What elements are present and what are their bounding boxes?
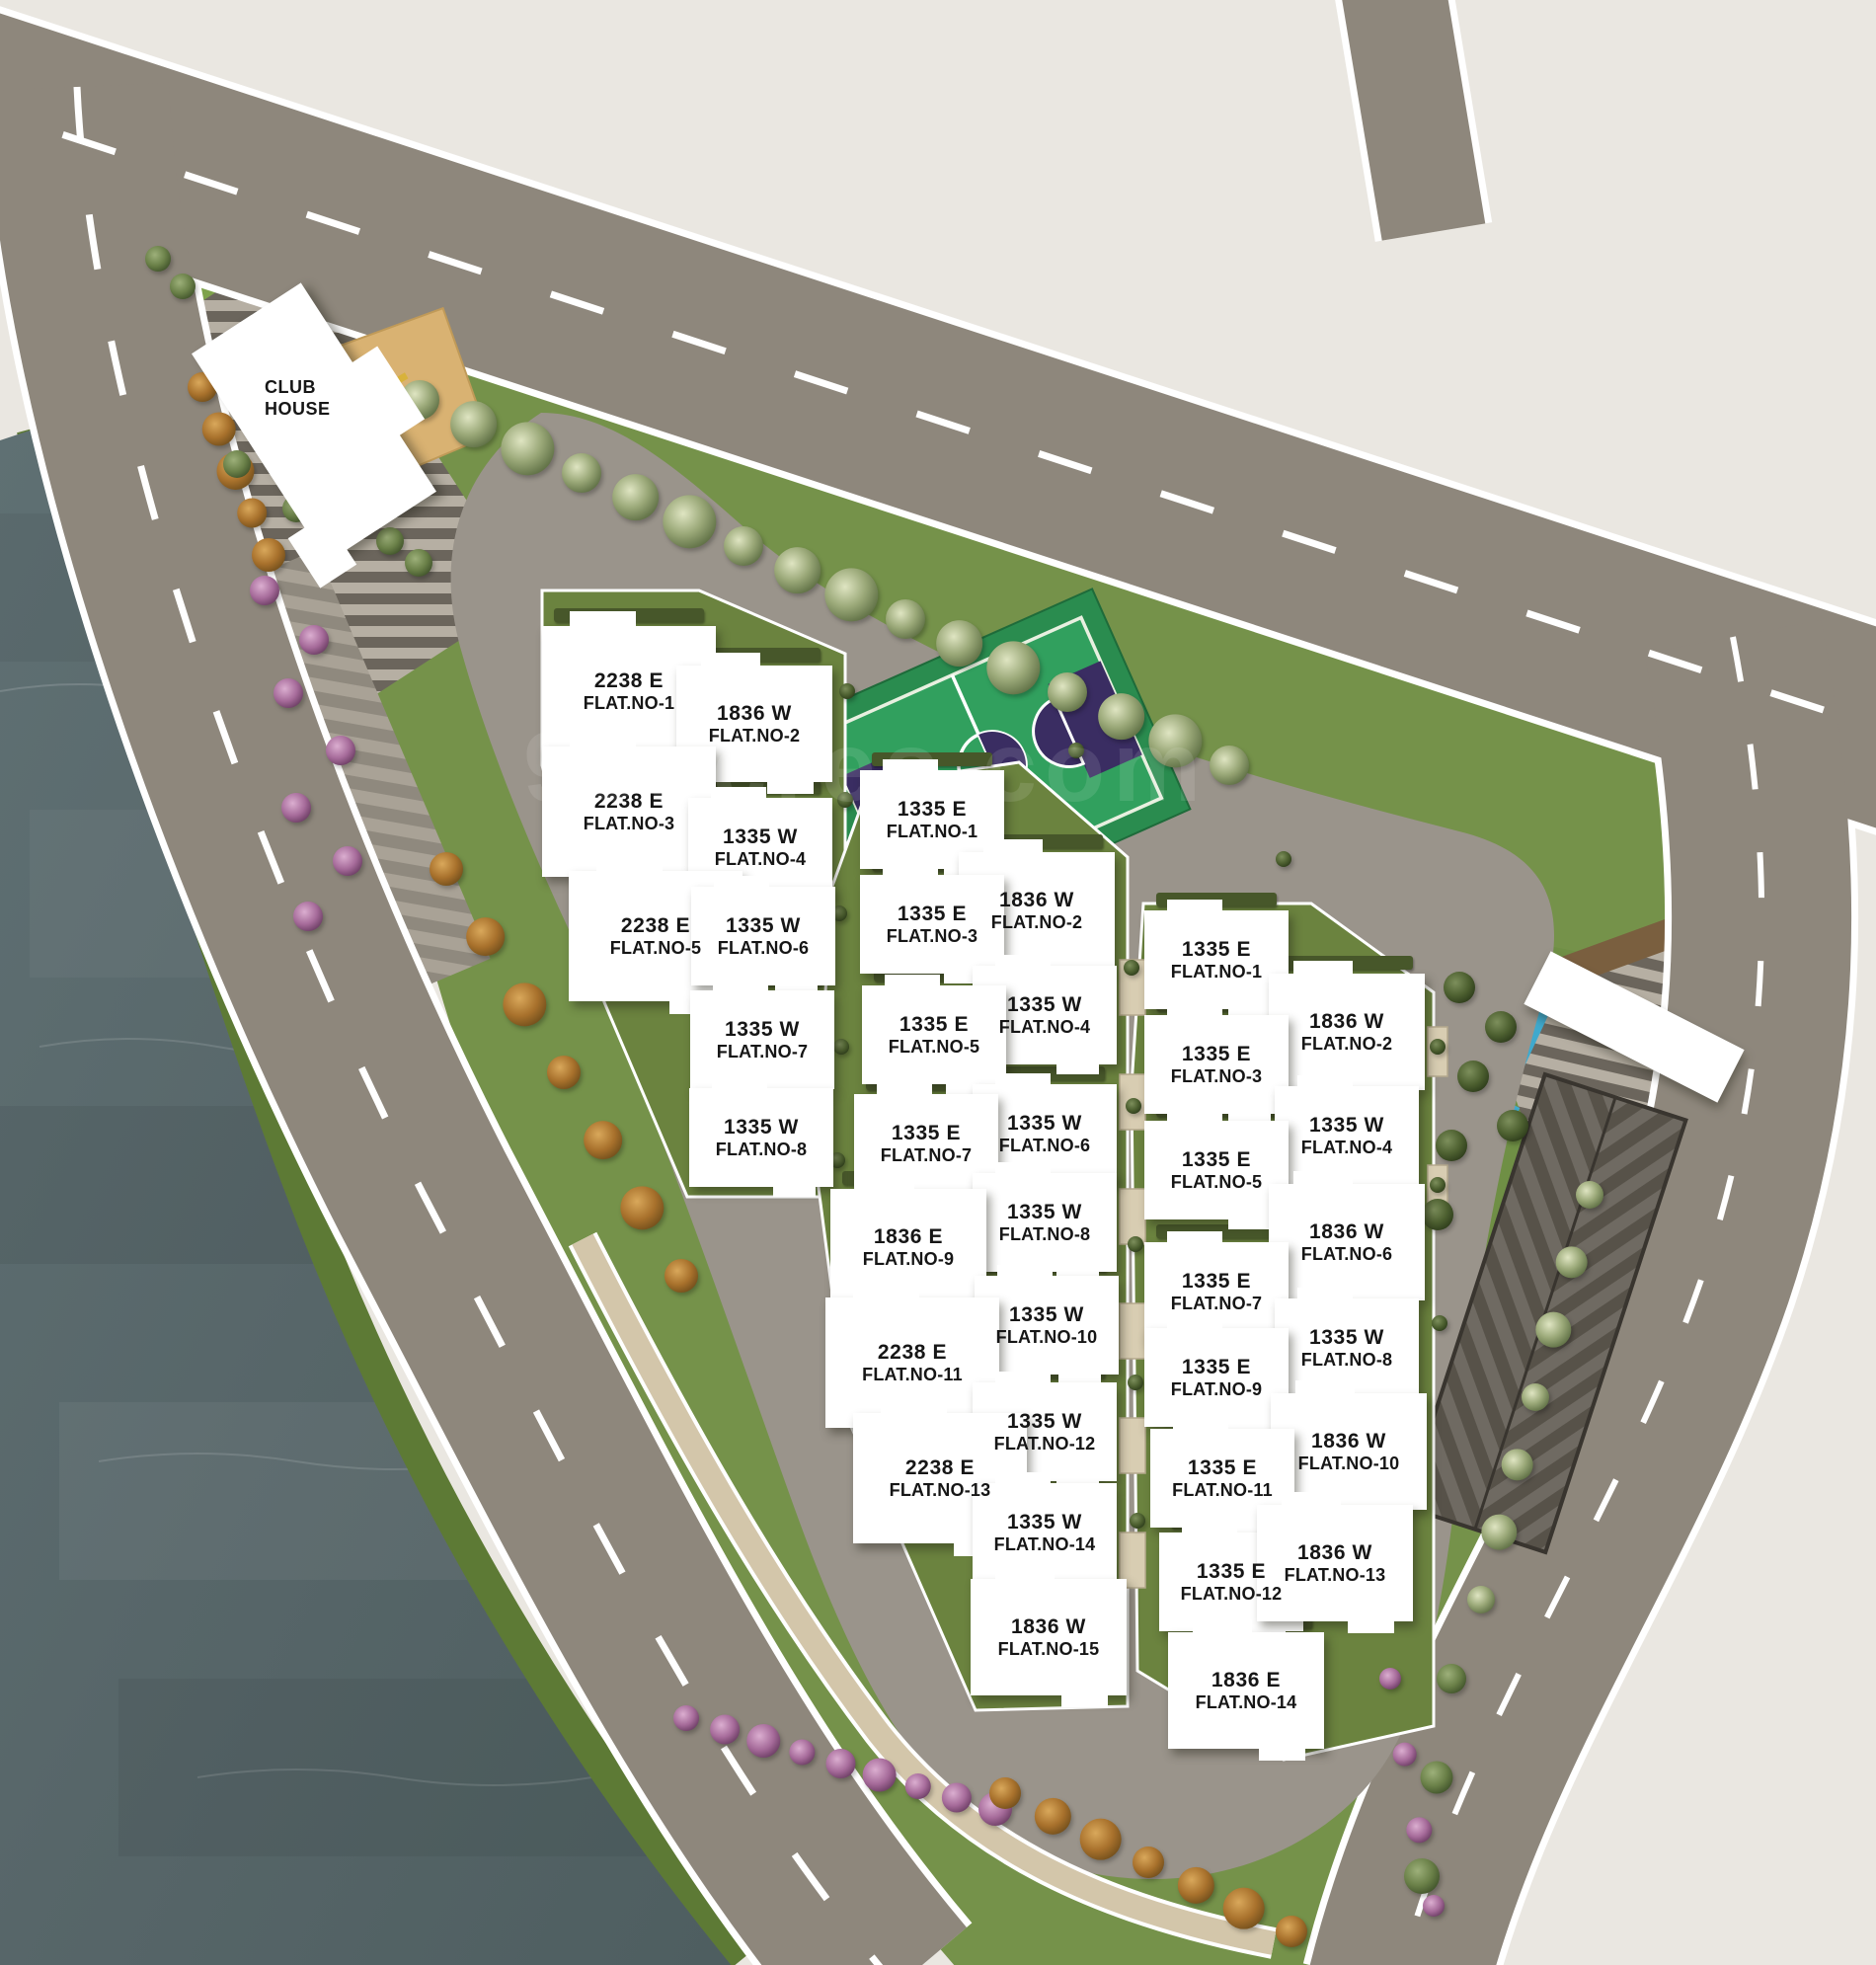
building-type-label: 1335 E xyxy=(1182,1270,1251,1294)
building-central-block-flat-no-3[interactable]: 1335 EFLAT.NO-3 xyxy=(860,875,1004,974)
building-type-label: 1836 E xyxy=(1212,1669,1281,1692)
building-central-block-flat-no-8[interactable]: 1335 WFLAT.NO-8 xyxy=(973,1173,1117,1272)
club-house-building[interactable] xyxy=(192,282,436,562)
site-plan: CLUB HOUSE 2238 EFLAT.NO-11836 WFLAT.NO-… xyxy=(0,0,1876,1965)
club-house-label-line1: CLUB xyxy=(265,377,383,399)
building-east-block-flat-no-5[interactable]: 1335 EFLAT.NO-5 xyxy=(1144,1121,1289,1219)
building-type-label: 1335 E xyxy=(1182,1043,1251,1066)
building-flat-label: FLAT.NO-6 xyxy=(1301,1244,1392,1264)
building-flat-label: FLAT.NO-3 xyxy=(887,926,977,946)
building-type-label: 1335 W xyxy=(723,825,798,849)
building-flat-label: FLAT.NO-2 xyxy=(991,912,1082,932)
building-flat-label: FLAT.NO-15 xyxy=(998,1639,1100,1659)
building-flat-label: FLAT.NO-12 xyxy=(994,1434,1096,1454)
building-type-label: 1836 W xyxy=(999,889,1074,912)
building-flat-label: FLAT.NO-9 xyxy=(863,1249,954,1269)
building-type-label: 2238 E xyxy=(905,1456,975,1480)
building-central-block-flat-no-15[interactable]: 1836 WFLAT.NO-15 xyxy=(971,1579,1127,1695)
building-flat-label: FLAT.NO-3 xyxy=(584,814,674,833)
building-type-label: 1836 W xyxy=(1309,1010,1384,1034)
building-flat-label: FLAT.NO-6 xyxy=(718,938,809,958)
building-flat-label: FLAT.NO-5 xyxy=(1171,1172,1262,1192)
building-east-block-flat-no-13[interactable]: 1836 WFLAT.NO-13 xyxy=(1257,1505,1413,1621)
building-type-label: 1335 W xyxy=(1007,1410,1082,1434)
building-type-label: 1335 W xyxy=(1007,993,1082,1017)
building-central-block-flat-no-5[interactable]: 1335 EFLAT.NO-5 xyxy=(862,985,1006,1084)
building-flat-label: FLAT.NO-13 xyxy=(890,1480,991,1500)
club-house-label-line2: HOUSE xyxy=(265,399,383,421)
building-flat-label: FLAT.NO-14 xyxy=(994,1534,1096,1554)
building-type-label: 1335 E xyxy=(1182,1356,1251,1379)
building-flat-label: FLAT.NO-2 xyxy=(709,726,800,746)
building-east-block-flat-no-6[interactable]: 1836 WFLAT.NO-6 xyxy=(1269,1184,1425,1300)
building-flat-label: FLAT.NO-11 xyxy=(1172,1480,1273,1500)
building-east-block-flat-no-3[interactable]: 1335 EFLAT.NO-3 xyxy=(1144,1015,1289,1114)
building-type-label: 1335 E xyxy=(898,798,967,822)
building-flat-label: FLAT.NO-8 xyxy=(716,1140,807,1159)
building-type-label: 1335 E xyxy=(1188,1456,1257,1480)
building-type-label: 1836 W xyxy=(717,702,792,726)
building-east-block-flat-no-2[interactable]: 1836 WFLAT.NO-2 xyxy=(1269,974,1425,1090)
building-type-label: 1335 W xyxy=(725,1018,800,1042)
building-type-label: 1335 W xyxy=(724,1116,799,1140)
building-flat-label: FLAT.NO-7 xyxy=(717,1042,808,1061)
building-east-block-flat-no-14[interactable]: 1836 EFLAT.NO-14 xyxy=(1168,1632,1324,1749)
building-west-block-flat-no-6[interactable]: 1335 WFLAT.NO-6 xyxy=(691,887,835,985)
building-type-label: 1836 W xyxy=(1311,1430,1386,1454)
building-flat-label: FLAT.NO-5 xyxy=(610,938,701,958)
building-type-label: 1335 E xyxy=(1182,938,1251,962)
building-type-label: 2238 E xyxy=(621,914,690,938)
building-type-label: 1335 W xyxy=(726,914,801,938)
building-flat-label: FLAT.NO-9 xyxy=(1171,1379,1262,1399)
building-type-label: 1836 W xyxy=(1011,1615,1086,1639)
building-flat-label: FLAT.NO-10 xyxy=(996,1327,1098,1347)
building-type-label: 1335 W xyxy=(1007,1511,1082,1534)
building-flat-label: FLAT.NO-4 xyxy=(715,849,806,869)
building-type-label: 1335 E xyxy=(898,903,967,926)
building-type-label: 2238 E xyxy=(594,669,664,693)
building-type-label: 1335 W xyxy=(1009,1303,1084,1327)
building-type-label: 2238 E xyxy=(878,1341,947,1365)
building-flat-label: FLAT.NO-8 xyxy=(1301,1350,1392,1370)
building-type-label: 1836 W xyxy=(1297,1541,1372,1565)
building-flat-label: FLAT.NO-11 xyxy=(862,1365,963,1384)
building-type-label: 1335 E xyxy=(1197,1560,1266,1584)
building-flat-label: FLAT.NO-1 xyxy=(584,693,674,713)
building-type-label: 1335 W xyxy=(1309,1114,1384,1138)
building-flat-label: FLAT.NO-7 xyxy=(881,1145,972,1165)
building-flat-label: FLAT.NO-14 xyxy=(1196,1692,1297,1712)
building-type-label: 2238 E xyxy=(594,790,664,814)
building-type-label: 1836 W xyxy=(1309,1220,1384,1244)
building-flat-label: FLAT.NO-5 xyxy=(889,1037,979,1057)
building-west-block-flat-no-8[interactable]: 1335 WFLAT.NO-8 xyxy=(689,1088,833,1187)
building-east-block-flat-no-4[interactable]: 1335 WFLAT.NO-4 xyxy=(1275,1086,1419,1185)
building-flat-label: FLAT.NO-12 xyxy=(1181,1584,1283,1604)
building-type-label: 1335 E xyxy=(892,1122,961,1145)
building-flat-label: FLAT.NO-4 xyxy=(999,1017,1090,1037)
building-flat-label: FLAT.NO-1 xyxy=(1171,962,1262,982)
building-layer: CLUB HOUSE 2238 EFLAT.NO-11836 WFLAT.NO-… xyxy=(0,0,1876,1965)
club-house-label: CLUB HOUSE xyxy=(265,377,383,420)
building-type-label: 1335 W xyxy=(1309,1326,1384,1350)
building-type-label: 1335 E xyxy=(1182,1148,1251,1172)
building-flat-label: FLAT.NO-13 xyxy=(1285,1565,1386,1585)
building-flat-label: FLAT.NO-1 xyxy=(887,822,977,841)
building-type-label: 1335 W xyxy=(1007,1112,1082,1136)
building-type-label: 1335 E xyxy=(899,1013,969,1037)
building-flat-label: FLAT.NO-4 xyxy=(1301,1138,1392,1157)
building-east-block-flat-no-1[interactable]: 1335 EFLAT.NO-1 xyxy=(1144,910,1289,1009)
building-flat-label: FLAT.NO-7 xyxy=(1171,1294,1262,1313)
building-east-block-flat-no-9[interactable]: 1335 EFLAT.NO-9 xyxy=(1144,1328,1289,1427)
building-west-block-flat-no-7[interactable]: 1335 WFLAT.NO-7 xyxy=(690,990,834,1089)
building-flat-label: FLAT.NO-2 xyxy=(1301,1034,1392,1054)
building-flat-label: FLAT.NO-10 xyxy=(1298,1454,1400,1473)
building-flat-label: FLAT.NO-3 xyxy=(1171,1066,1262,1086)
building-flat-label: FLAT.NO-6 xyxy=(999,1136,1090,1155)
building-type-label: 1836 E xyxy=(874,1225,943,1249)
building-flat-label: FLAT.NO-8 xyxy=(999,1224,1090,1244)
building-type-label: 1335 W xyxy=(1007,1201,1082,1224)
